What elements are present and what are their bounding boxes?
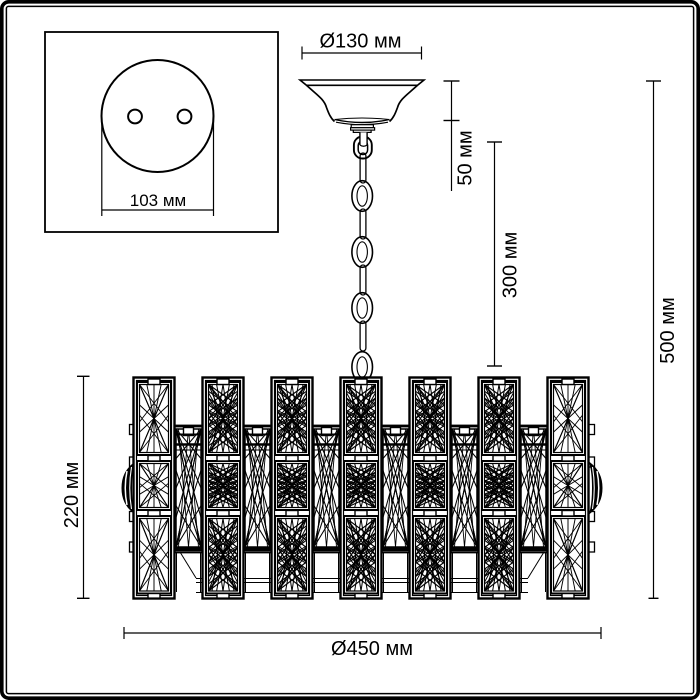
svg-text:500 мм: 500 мм [657, 297, 679, 363]
svg-text:50 мм: 50 мм [455, 130, 477, 185]
svg-text:220 мм: 220 мм [61, 462, 83, 528]
svg-text:300 мм: 300 мм [500, 232, 522, 298]
svg-text:Ø130 мм: Ø130 мм [320, 31, 402, 53]
svg-text:103 мм: 103 мм [130, 191, 186, 210]
svg-text:Ø450 мм: Ø450 мм [331, 638, 413, 660]
